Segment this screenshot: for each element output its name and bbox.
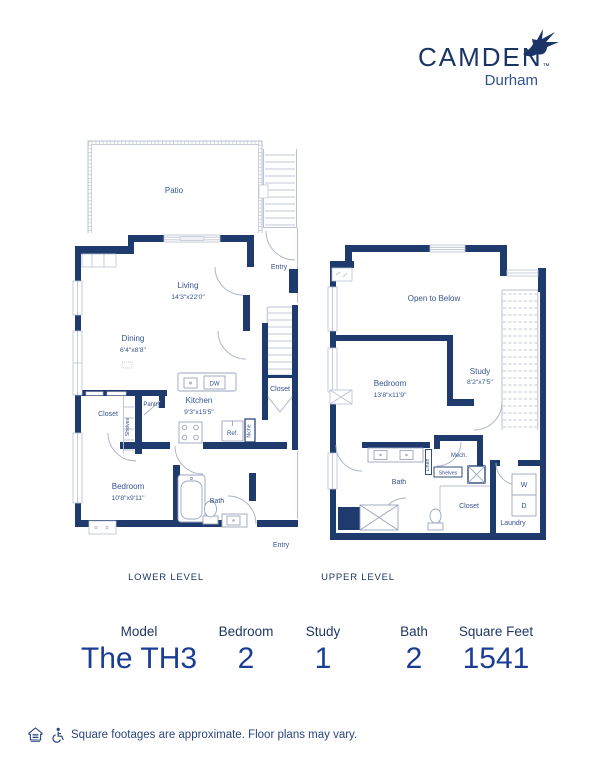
closet-label: Closet [459,503,479,510]
washer-label: W [521,482,528,489]
kitchen-label: Kitchen [186,396,213,405]
closet-stairs-label: Closet [270,386,290,393]
stat-value: 1541 [459,642,533,676]
entry-bottom-label: Entry [273,542,290,549]
dishwasher-label: DW [210,382,220,388]
kitchen-dims: 9'3"x15'5" [184,409,214,416]
stat-bath: Bath 2 [400,624,428,676]
shelves-label: Shelves [439,471,458,477]
brand-location: Durham [418,72,538,89]
patio-label: Patio [165,186,184,195]
stat-value: 2 [400,642,428,676]
lower-level-floorplan: Patio Living 14'3"x22'0" Entry Dining 6'… [60,135,310,565]
stat-label: Study [306,624,341,639]
fixtures [360,448,536,530]
bedroom-dims: 13'8"x11'9" [374,392,408,399]
study-label: Study [470,367,490,376]
closet-bedroom-label: Closet [98,411,118,418]
trademark: ™ [543,63,550,70]
stat-label: Square Feet [459,624,533,639]
stat-label: Model [81,624,197,639]
toilet-icon [428,523,443,530]
open-to-below-label: Open to Below [408,294,461,303]
stat-label: Bath [400,624,428,639]
lower-level-caption: LOWER LEVEL [96,572,236,583]
stove-icon [179,422,202,443]
dining-label: Dining [122,334,145,343]
stat-model: Model The TH3 [81,624,197,676]
pantry-label: Pantry [143,402,160,408]
stat-value: 1 [306,642,341,676]
stairs-icon [259,149,297,228]
entry-top-label: Entry [271,264,288,271]
windows [328,245,538,489]
wheelchair-icon [50,727,64,743]
stat-value: The TH3 [81,642,197,676]
brand-logo: CAMDEN™ Durham [415,28,575,98]
stairs-icon [502,290,538,430]
bath-label: Bath [392,479,407,486]
upper-level-floorplan: Open to Below Bedroom 13'8"x11'9" Study … [322,228,562,548]
bedroom-dims: 10'8"x9'11" [112,495,146,502]
floorplan-page: CAMDEN™ Durham [0,0,600,776]
bath-label: Bath [210,498,225,505]
disclaimer-text: Square footages are approximate. Floor p… [71,729,357,741]
equal-housing-icon [28,727,43,743]
stat-square-feet: Square Feet 1541 [459,624,533,676]
upper-level-caption: UPPER LEVEL [288,572,428,583]
brand-name: CAMDEN™ [418,42,550,73]
living-label: Living [178,281,199,290]
stat-bedroom: Bedroom 2 [219,624,274,676]
mech-label: Mech. [451,453,468,459]
linen-label: Linen [425,459,431,472]
study-dims: 8'2"x7'5" [467,379,494,386]
stat-value: 2 [219,642,274,676]
laundry-label: Laundry [500,520,526,527]
niche-label: Niche [247,424,253,437]
refrigerator-label: Ref. [227,431,238,437]
dryer-label: D [521,503,526,510]
stat-study: Study 1 [306,624,341,676]
dining-dims: 6'4"x8'8" [120,347,147,354]
stat-label: Bedroom [219,624,274,639]
living-dims: 14'3"x22'0" [171,294,205,301]
bedroom-label: Bedroom [374,379,407,388]
shelves-label: Shelves [125,417,131,436]
disclaimer: Square footages are approximate. Floor p… [28,727,357,743]
bedroom-label: Bedroom [112,482,145,491]
